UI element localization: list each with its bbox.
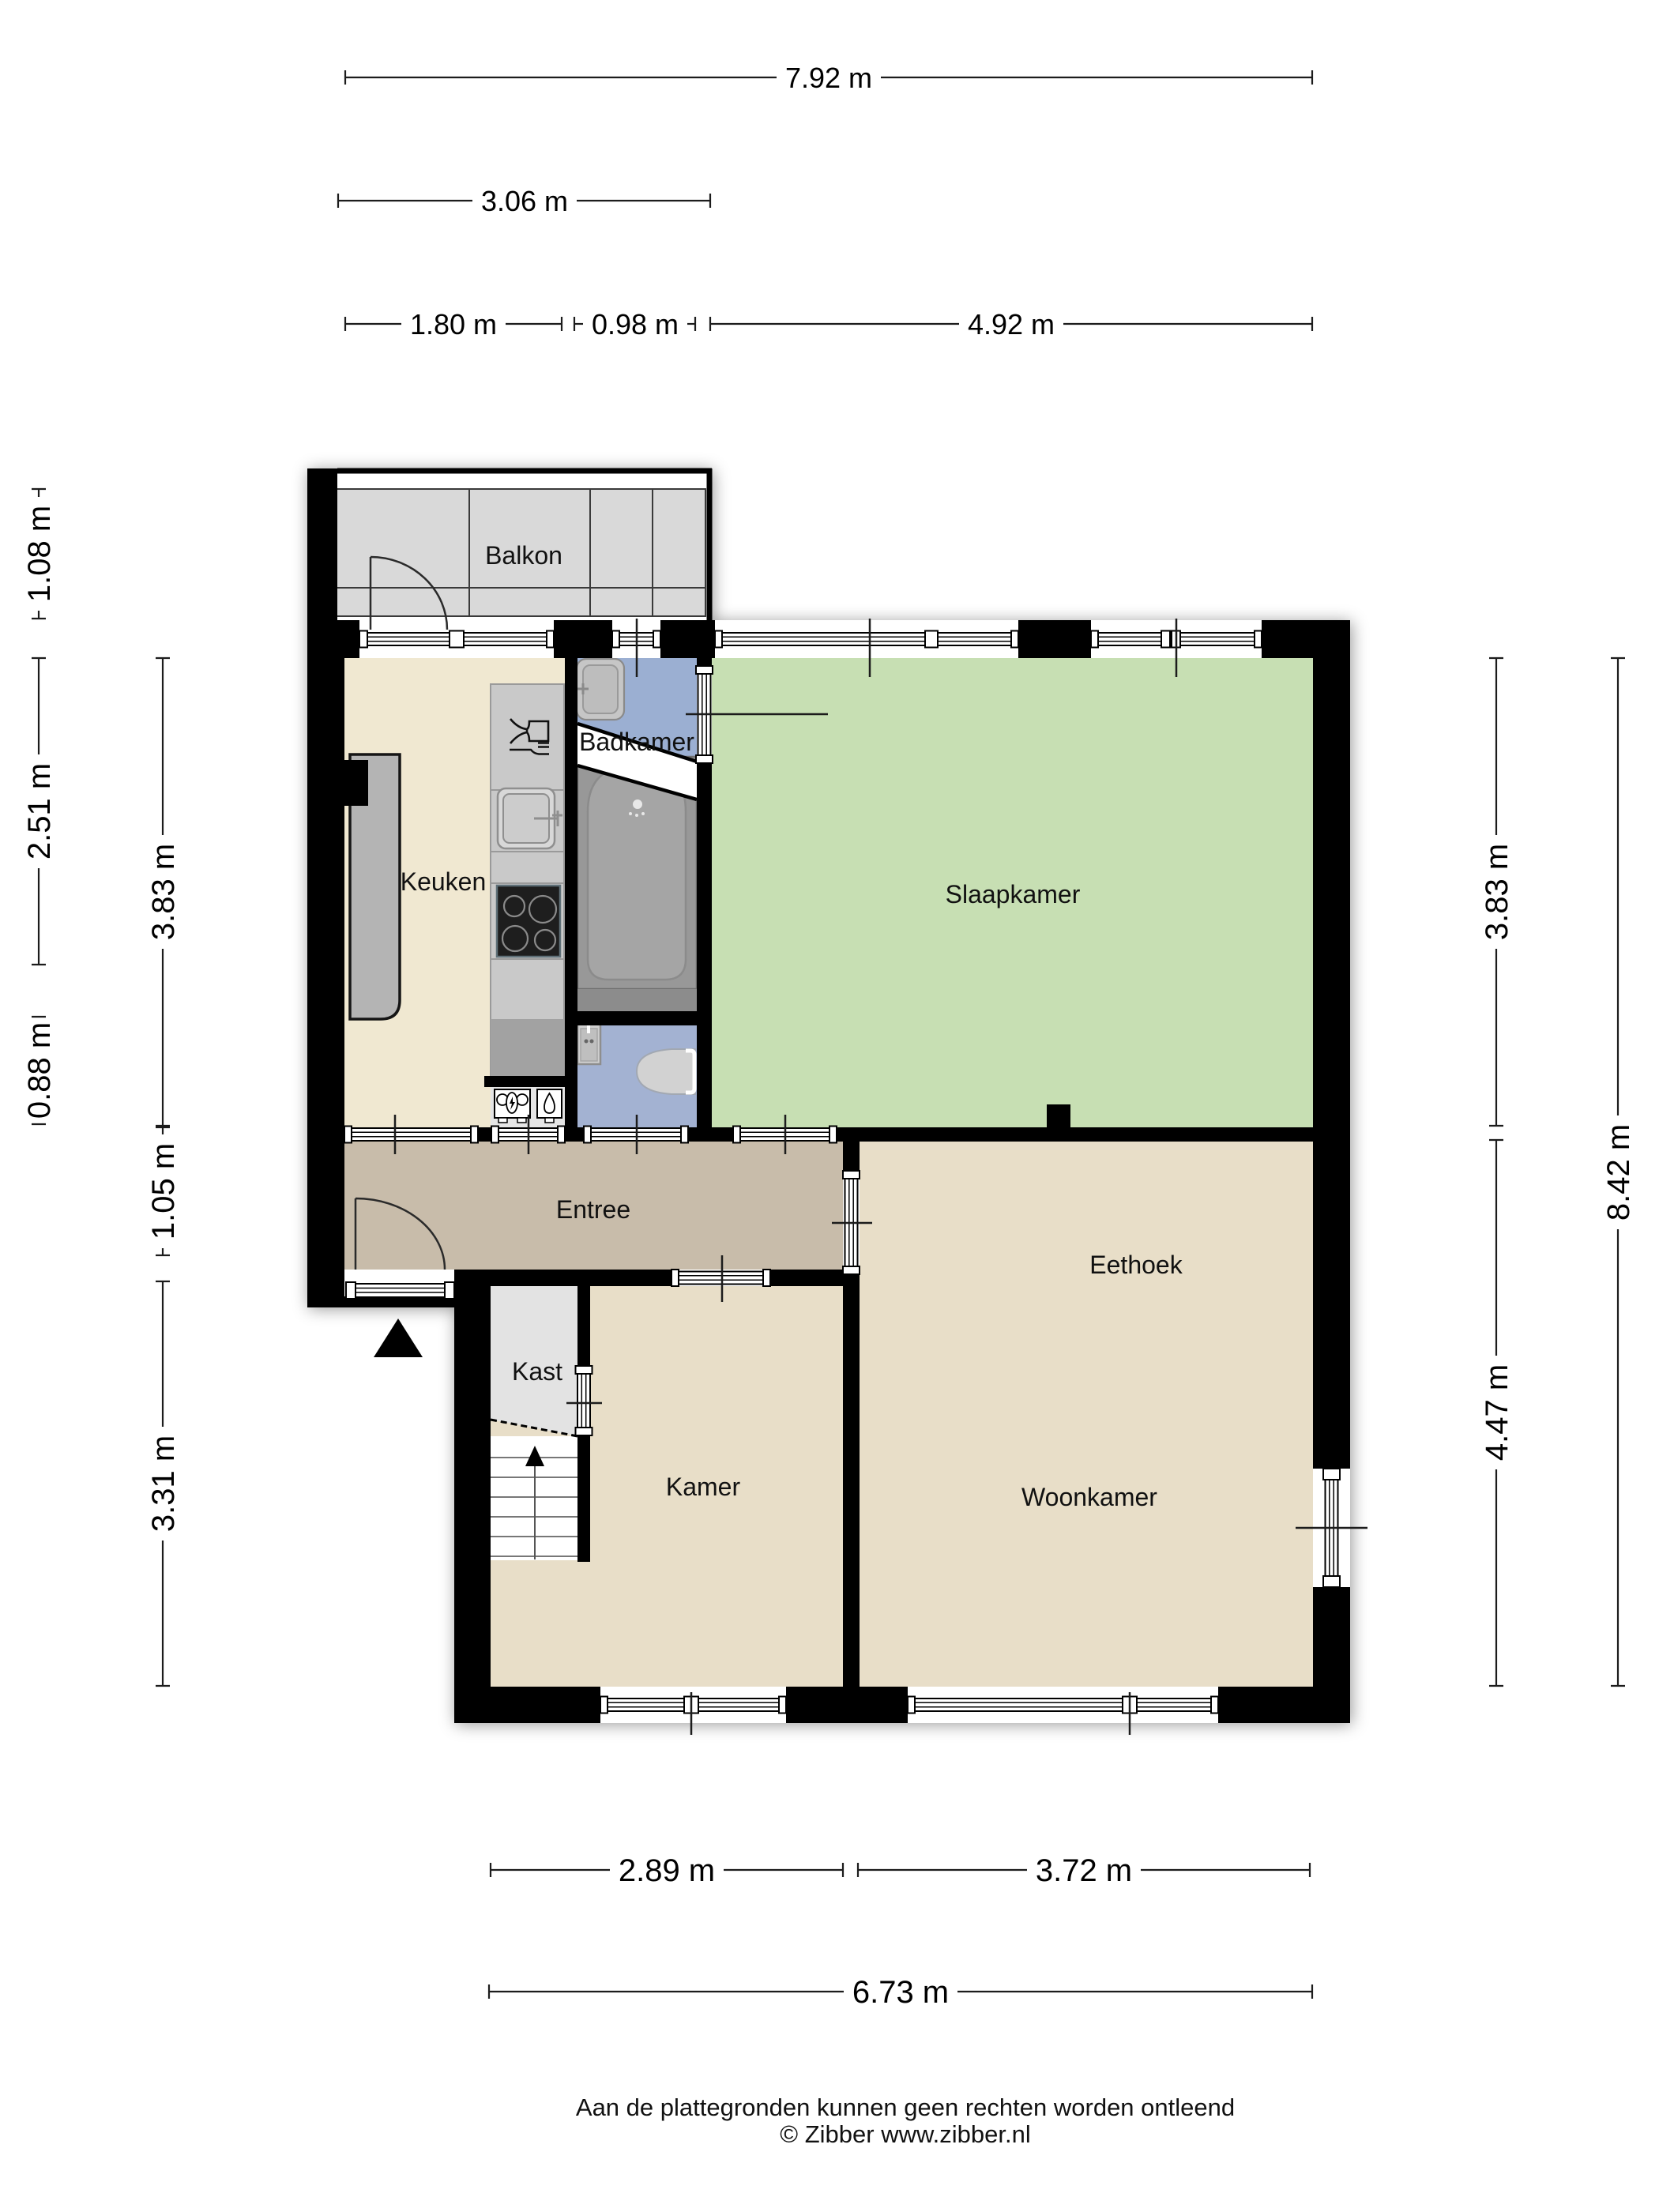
svg-text:2.89 m: 2.89 m <box>619 1853 715 1888</box>
svg-text:© Zibber www.zibber.nl: © Zibber www.zibber.nl <box>780 2120 1030 2148</box>
svg-text:3.83 m: 3.83 m <box>146 844 181 940</box>
svg-text:Eethoek: Eethoek <box>1089 1251 1183 1279</box>
svg-text:8.42 m: 8.42 m <box>1601 1124 1636 1221</box>
svg-text:4.47 m: 4.47 m <box>1480 1364 1514 1461</box>
svg-text:0.98 m: 0.98 m <box>592 308 679 340</box>
svg-text:1.80 m: 1.80 m <box>410 308 497 340</box>
svg-text:4.92 m: 4.92 m <box>968 308 1055 340</box>
svg-text:1.08 m: 1.08 m <box>22 506 57 602</box>
svg-text:Kast: Kast <box>512 1357 562 1386</box>
svg-text:3.06 m: 3.06 m <box>481 185 568 217</box>
svg-text:Woonkamer: Woonkamer <box>1021 1483 1157 1511</box>
svg-text:Kamer: Kamer <box>666 1473 741 1501</box>
svg-text:Keuken: Keuken <box>401 867 487 896</box>
svg-text:0.88 m: 0.88 m <box>22 1022 57 1119</box>
svg-text:Aan de plattegronden kunnen ge: Aan de plattegronden kunnen geen rechten… <box>576 2093 1235 2121</box>
svg-text:7.92 m: 7.92 m <box>785 62 872 94</box>
svg-text:3.72 m: 3.72 m <box>1036 1853 1132 1888</box>
svg-text:Entree: Entree <box>556 1195 630 1224</box>
svg-text:Badkamer: Badkamer <box>579 728 694 756</box>
svg-text:6.73 m: 6.73 m <box>852 1975 949 2010</box>
svg-text:1.05 m: 1.05 m <box>146 1143 181 1240</box>
svg-text:3.83 m: 3.83 m <box>1480 844 1514 940</box>
svg-text:2.51 m: 2.51 m <box>22 763 57 860</box>
svg-text:Balkon: Balkon <box>485 541 562 570</box>
svg-text:3.31 m: 3.31 m <box>146 1435 181 1532</box>
svg-text:Slaapkamer: Slaapkamer <box>946 880 1081 908</box>
